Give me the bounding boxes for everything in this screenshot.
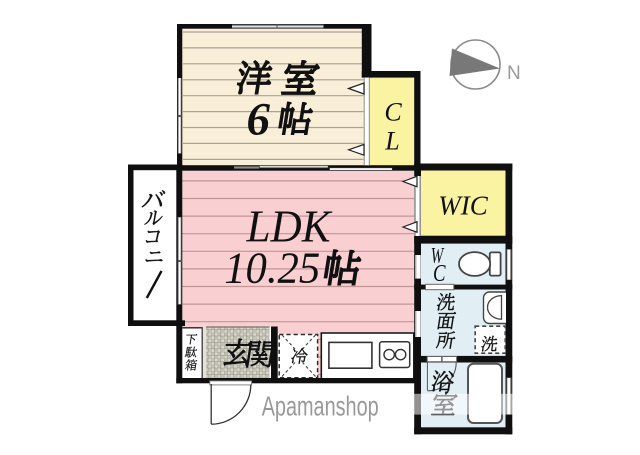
svg-text:WIC: WIC xyxy=(438,191,488,221)
svg-text:Apamanshop: Apamanshop xyxy=(262,390,379,421)
svg-text:C: C xyxy=(384,97,402,126)
svg-text:C: C xyxy=(433,261,446,287)
svg-text:6: 6 xyxy=(247,93,271,145)
svg-text:L: L xyxy=(384,127,399,156)
svg-text:10.25: 10.25 xyxy=(224,243,320,292)
svg-text:N: N xyxy=(507,63,521,84)
